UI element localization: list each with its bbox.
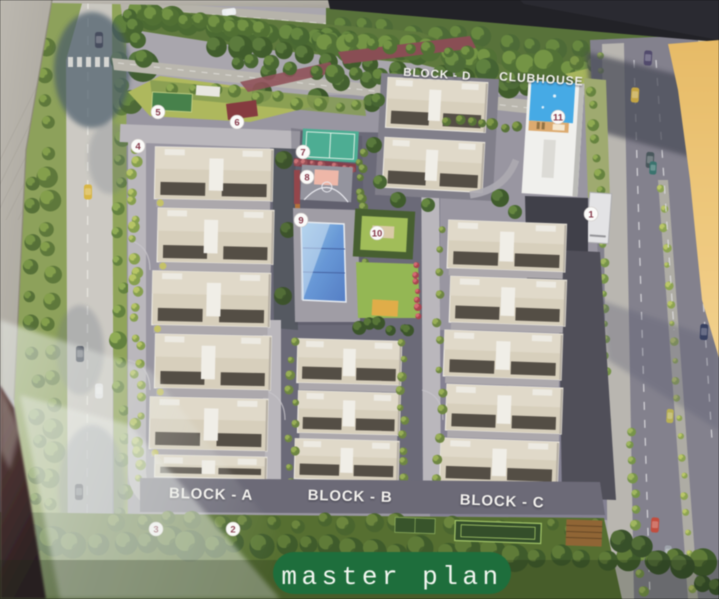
svg-text:master plan: master plan — [281, 562, 502, 592]
